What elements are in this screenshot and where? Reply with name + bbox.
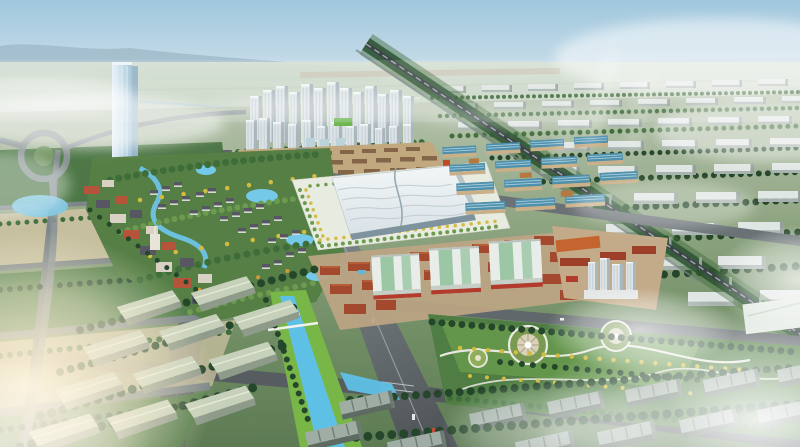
red-accent-building xyxy=(443,160,450,166)
horizon-haze-overlay xyxy=(0,60,800,122)
scene-canvas xyxy=(0,0,800,447)
aerial-rendering xyxy=(0,0,800,447)
town-landmark xyxy=(150,234,160,250)
